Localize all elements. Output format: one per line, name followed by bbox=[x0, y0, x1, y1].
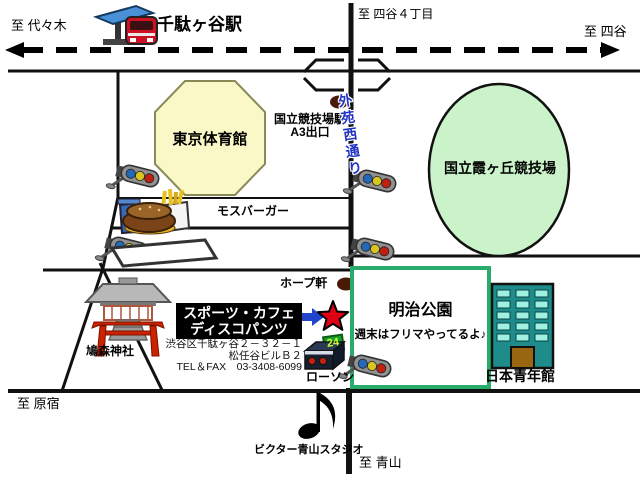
venue-name-line1: スポーツ・カフェ bbox=[176, 305, 302, 321]
lawson-24-sign: 24 bbox=[323, 335, 343, 351]
venue-name-line2: ディスコパンツ bbox=[176, 321, 302, 337]
label-meiji-park: 明治公園 bbox=[352, 296, 489, 320]
office-building-icon bbox=[492, 284, 553, 368]
map-graphics bbox=[0, 0, 640, 480]
label-hatonomori-shrine: 鳩森神社 bbox=[86, 345, 134, 358]
label-victor-aoyama-studio: ビクター青山スタジオ bbox=[254, 444, 364, 456]
label-to-yotsuya-4chome: 至 四谷４丁目 bbox=[358, 8, 433, 21]
railway-arrow-right bbox=[601, 42, 620, 58]
venue-tel: TEL＆FAX 03-3408-6099 bbox=[160, 362, 302, 374]
label-sendagaya-station: 千駄ヶ谷駅 bbox=[157, 16, 242, 35]
venue-address: 渋谷区千駄ヶ谷２－３２－１ 松任谷ビルＢ２ TEL＆FAX 03-3408-60… bbox=[160, 339, 302, 374]
label-hope-ken: ホープ軒 bbox=[280, 277, 327, 290]
label-kasumigaoka-stadium: 国立霞ヶ丘競技場 bbox=[430, 161, 570, 176]
venue-address-line1: 渋谷区千駄ヶ谷２－３２－１ bbox=[160, 339, 302, 351]
label-to-harajuku: 至 原宿 bbox=[17, 397, 60, 411]
train-icon bbox=[126, 17, 157, 44]
traffic-light-icon bbox=[106, 161, 161, 199]
overpass-marks bbox=[304, 60, 390, 90]
music-note-icon bbox=[296, 393, 335, 442]
label-mos-burger: モスバーガー bbox=[217, 205, 289, 218]
label-to-yoyogi: 至 代々木 bbox=[11, 19, 67, 33]
station-icon bbox=[96, 6, 157, 45]
label-to-aoyama: 至 青山 bbox=[359, 456, 402, 470]
railway-arrow-left bbox=[5, 42, 24, 58]
label-tokyo-gymnasium: 東京体育館 bbox=[150, 132, 270, 149]
label-meiji-park-note: 週末はフリマやってるよ♪ bbox=[353, 326, 488, 342]
venue-name-box: スポーツ・カフェ ディスコパンツ bbox=[176, 303, 302, 339]
label-nippon-seinenkan: 日本青年館 bbox=[485, 369, 555, 384]
label-station-exit-line2: A3出口 bbox=[270, 126, 350, 139]
access-map: 至 代々木 千駄ヶ谷駅 至 四谷４丁目 至 四谷 東京体育館 国立競技場駅 A3… bbox=[0, 0, 640, 480]
railway-line bbox=[5, 42, 620, 58]
star-marker-icon bbox=[318, 301, 348, 330]
label-lawson: ローソン bbox=[306, 371, 354, 384]
label-to-yotsuya: 至 四谷 bbox=[584, 25, 627, 39]
label-station-exit: 国立競技場駅 A3出口 bbox=[270, 113, 350, 139]
blue-arrow-icon bbox=[299, 308, 324, 326]
